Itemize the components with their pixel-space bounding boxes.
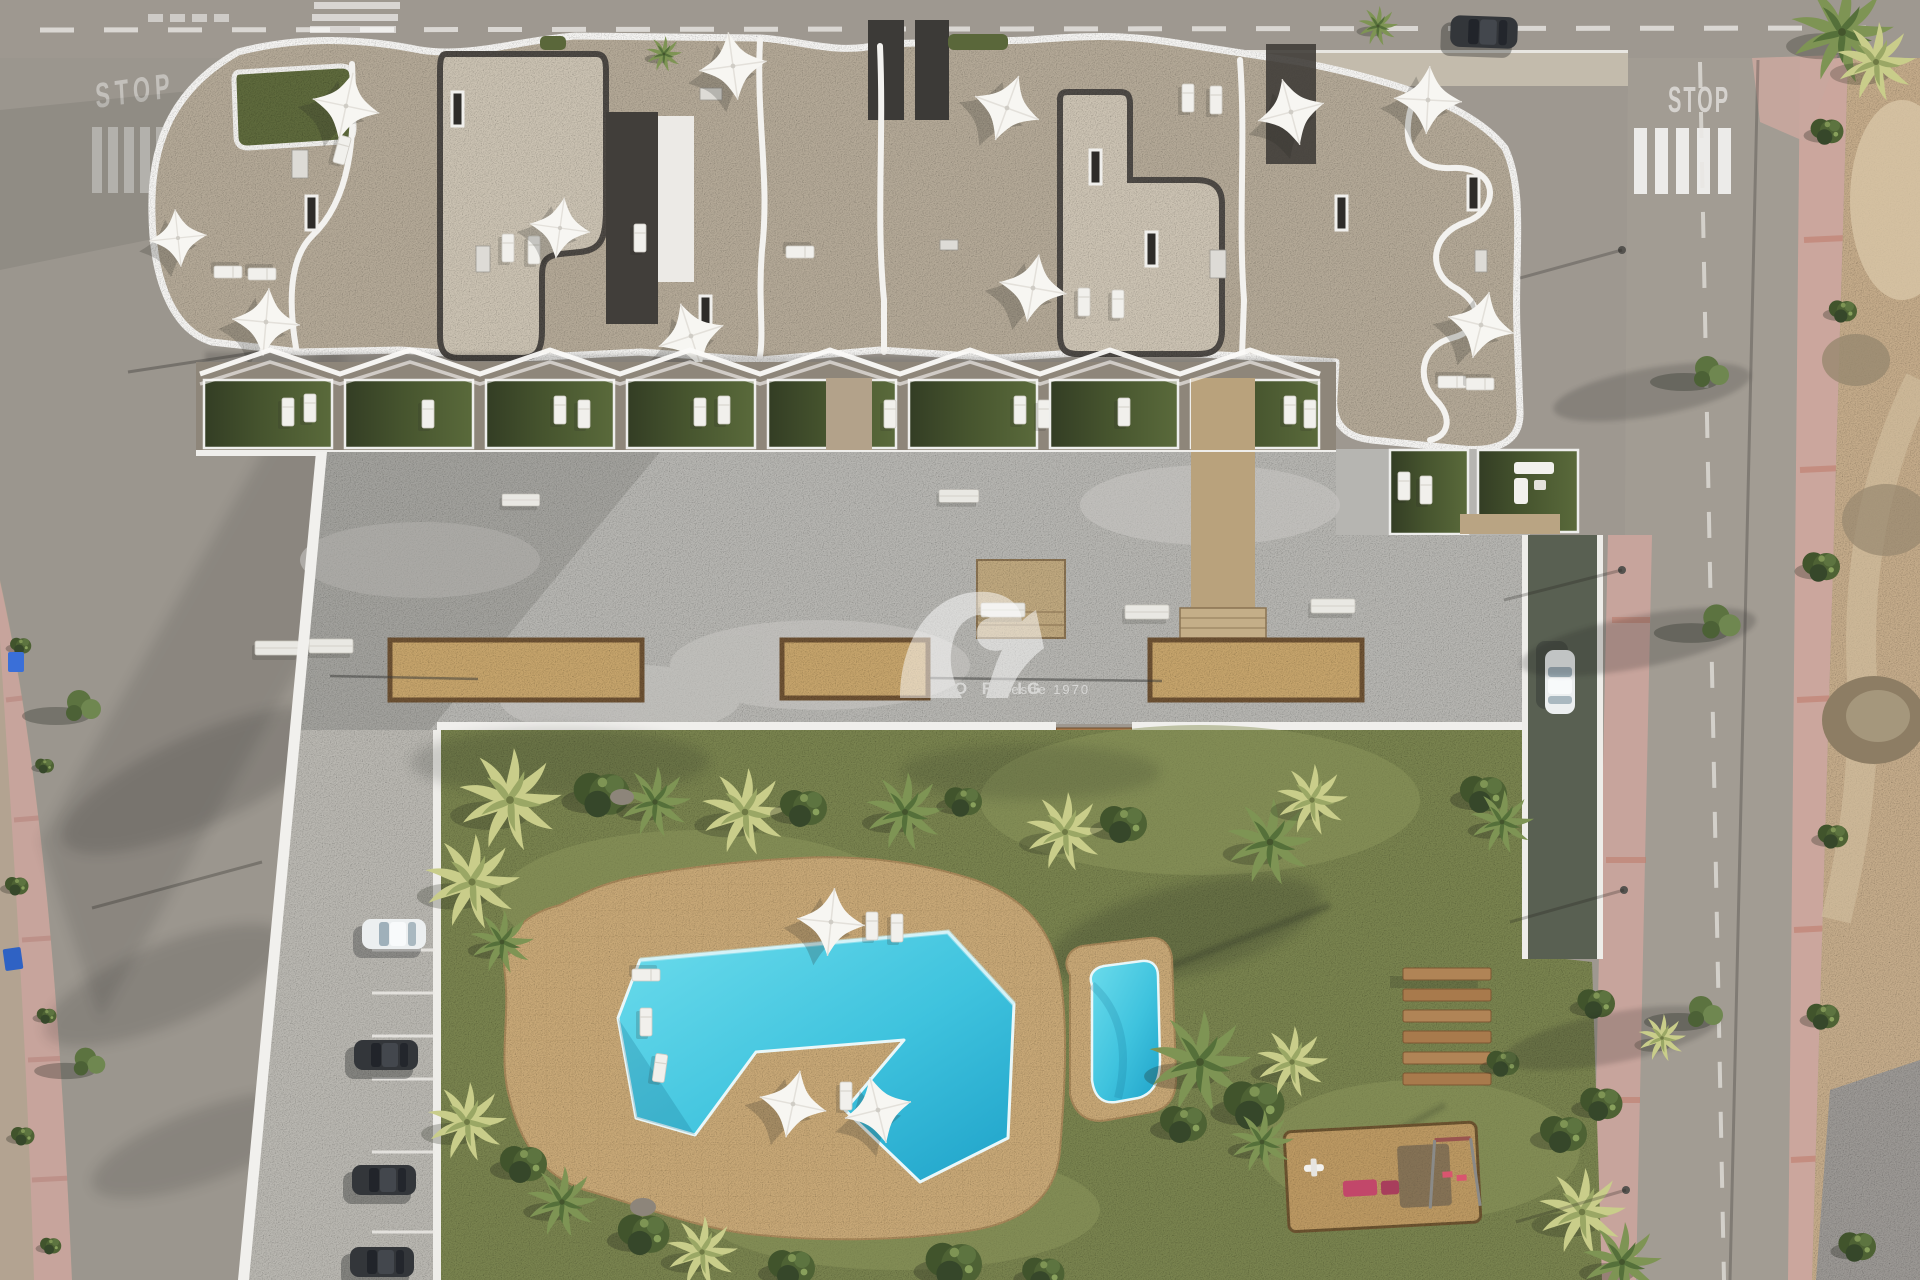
parked-car-dark [345,1040,418,1079]
driveway-ramp [1522,535,1603,959]
black-car-top-road [1440,15,1518,59]
blue-bin [3,947,24,971]
watermark-tagline: Desde 1970 [1000,682,1090,697]
corner-stone-path [1460,514,1560,534]
parked-car-white [353,919,426,958]
planter [390,640,642,700]
roof-hedge [540,36,566,50]
roof-hedge [948,34,1008,50]
parked-car-dark [343,1165,416,1204]
sand-planters [390,640,1362,700]
playground [1284,1122,1481,1232]
terrace-garden-cell [345,380,473,448]
crosswalk-top-left [310,2,400,33]
terrace-stone-path [1191,378,1255,452]
corner-lawns [1336,449,1578,535]
stair-tower [915,20,949,120]
planter [1150,640,1362,700]
dark-roof-block [606,112,658,324]
terrace-stone-gap [826,378,872,452]
kids-pool [1066,938,1176,1121]
white-roof-panel [658,116,694,282]
stone-steps [1180,608,1266,638]
play-train [1343,1178,1400,1197]
white-wall-garden-west [433,730,441,1280]
stone-path [1191,452,1255,612]
aerial-render: STOP STOP [0,0,1920,1280]
parked-car-dark [341,1247,414,1280]
stair-tower [868,20,904,120]
blue-bin [8,652,24,672]
